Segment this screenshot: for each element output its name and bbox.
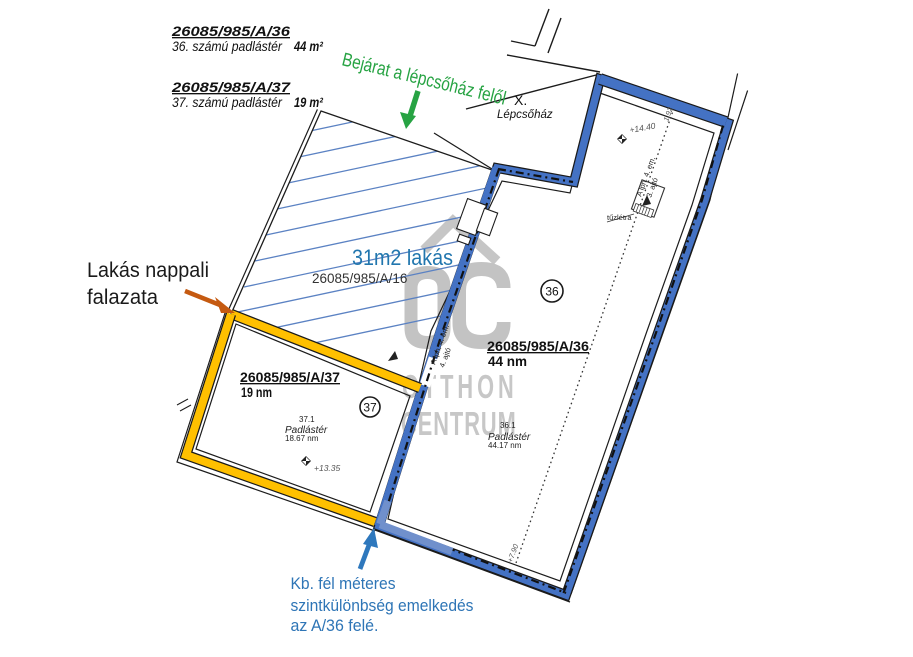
svg-text:44 nm: 44 nm (488, 354, 527, 369)
svg-text:26085/985/A/36: 26085/985/A/36 (487, 339, 590, 354)
svg-text:Kb. fél méteres: Kb. fél méteres (291, 574, 396, 593)
svg-text:Lakás nappali: Lakás nappali (87, 259, 209, 282)
svg-text:26085/985/A/37: 26085/985/A/37 (171, 80, 292, 95)
svg-text:37. számú padlástér: 37. számú padlástér (172, 95, 282, 110)
svg-text:36. számú padlástér: 36. számú padlástér (172, 39, 282, 54)
svg-text:26085/985/A/36: 26085/985/A/36 (171, 24, 291, 39)
svg-text:26085/985/A/16: 26085/985/A/16 (312, 271, 407, 286)
svg-text:szintkülönbség emelkedés: szintkülönbség emelkedés (291, 596, 474, 615)
svg-text:Bejárat a lépcsőház felől: Bejárat a lépcsőház felől (340, 49, 508, 109)
svg-text:Lépcsőház: Lépcsőház (497, 109, 553, 121)
svg-text:36.1: 36.1 (500, 421, 516, 430)
svg-text:26085/985/A/37: 26085/985/A/37 (240, 370, 340, 385)
svg-text:37: 37 (363, 401, 377, 415)
svg-text:+13.35: +13.35 (314, 463, 341, 473)
svg-text:44 m²: 44 m² (293, 39, 323, 54)
svg-text:37.1: 37.1 (299, 415, 315, 424)
svg-text:+14.40: +14.40 (629, 121, 657, 135)
svg-text:falazata: falazata (87, 286, 158, 309)
svg-text:az A/36 felé.: az A/36 felé. (291, 616, 379, 635)
svg-text:19 m²: 19 m² (294, 95, 323, 110)
svg-text:+7.90: +7.90 (505, 542, 520, 564)
svg-text:19 nm: 19 nm (241, 385, 272, 400)
svg-text:44.17 nm: 44.17 nm (488, 441, 522, 450)
svg-text:31m2 lakás: 31m2 lakás (352, 245, 453, 270)
svg-text:X.: X. (514, 92, 527, 108)
svg-text:36: 36 (545, 285, 559, 299)
svg-text:18.67 nm: 18.67 nm (285, 434, 319, 443)
